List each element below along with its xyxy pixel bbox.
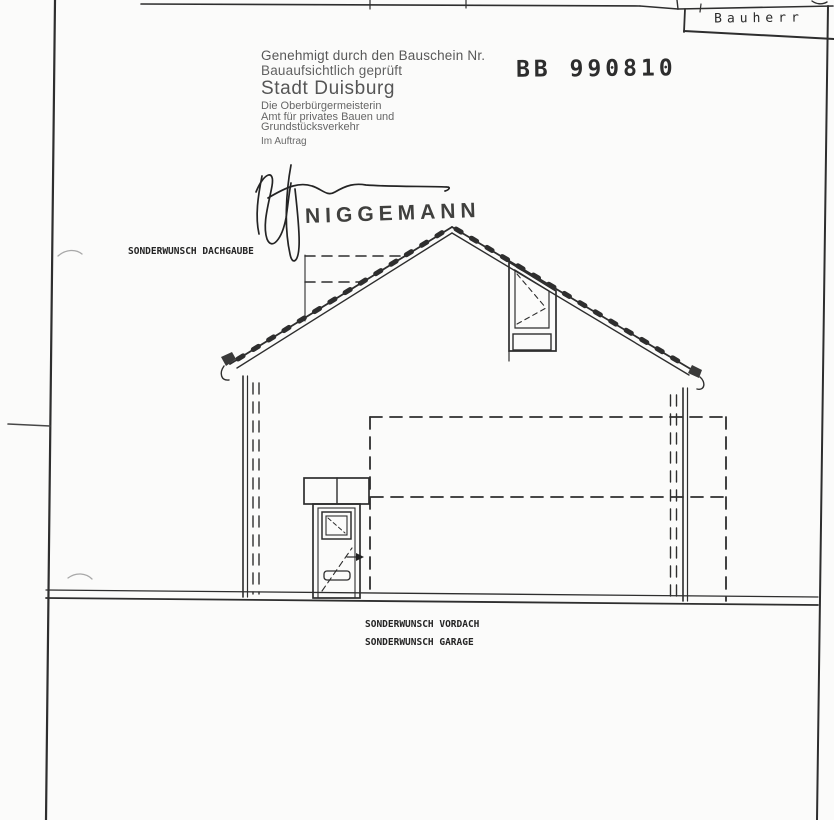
annotation-sonderwunsch-vordach: SONDERWUNSCH VORDACH — [365, 619, 479, 630]
page-border-left — [46, 0, 55, 820]
permit-number-stamp: BB 990810 — [516, 55, 677, 82]
annotation-sonderwunsch-dachgaube: SONDERWUNSCH DACHGAUBE — [128, 246, 254, 257]
right-wall — [671, 388, 688, 601]
roof-window — [509, 262, 556, 361]
stamp-line-permit: Genehmigt durch den Bauschein Nr. — [261, 48, 485, 63]
entrance-door — [304, 478, 369, 598]
left-eave-gutter — [221, 352, 236, 380]
house-elevation — [46, 227, 818, 605]
stamp-line-property: Grundstücksverkehr — [261, 122, 485, 133]
stamp-line-mayor: Die Oberbürgermeisterin — [261, 101, 485, 112]
page-border-right — [817, 6, 828, 820]
left-wall — [243, 376, 259, 597]
stamp-line-checked: Bauaufsichtlich geprüft — [261, 63, 485, 78]
stamp-line-im-auftrag: Im Auftrag — [261, 136, 485, 148]
garage-vordach-outline — [370, 417, 726, 601]
bauherr-label: Bauherr — [693, 10, 825, 26]
annotation-sonderwunsch-garage: SONDERWUNSCH GARAGE — [365, 637, 474, 648]
approval-stamp: Genehmigt durch den Bauschein Nr. Bauauf… — [261, 48, 485, 148]
page-border-top — [141, 0, 678, 9]
stamp-city: Stadt Duisburg — [261, 79, 485, 99]
scanned-permit-elevation-page: Bauherr Genehmigt durch den Bauschein Nr… — [0, 0, 834, 820]
ground-line — [46, 590, 818, 605]
right-eave-gutter — [688, 365, 704, 389]
